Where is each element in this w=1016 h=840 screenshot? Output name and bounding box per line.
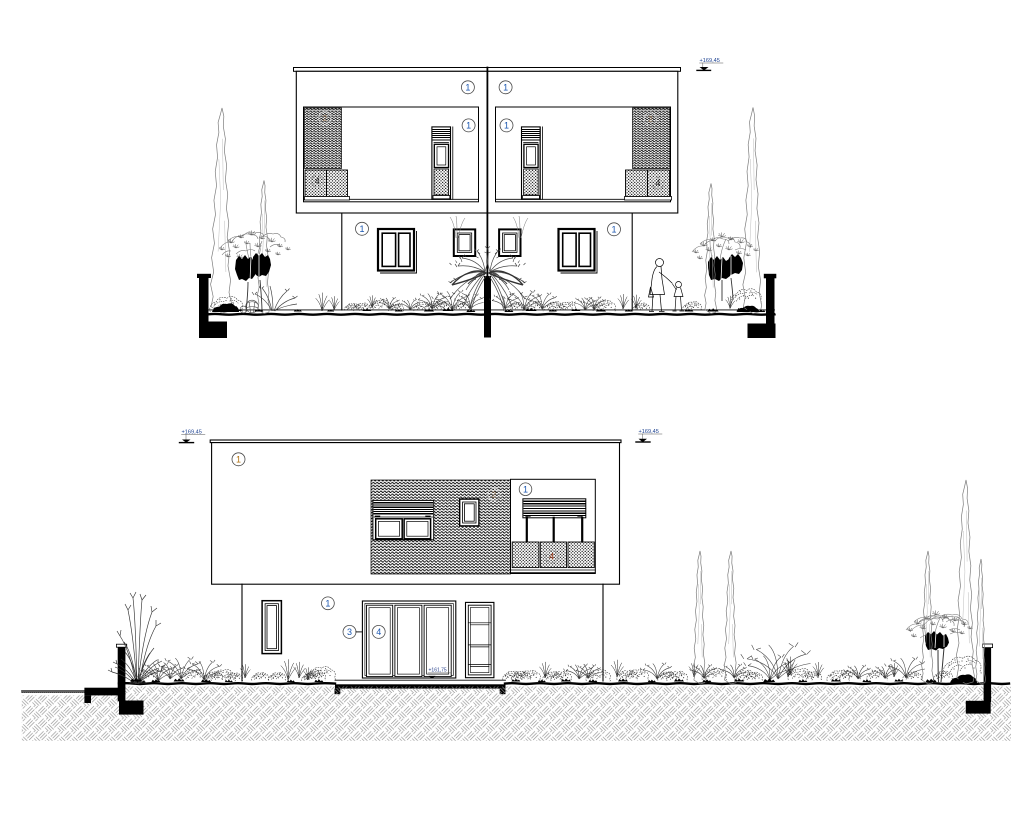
- svg-text:4: 4: [655, 178, 660, 188]
- svg-text:2: 2: [492, 491, 497, 500]
- svg-text:1: 1: [523, 484, 528, 494]
- svg-text:1: 1: [359, 224, 364, 234]
- svg-text:3: 3: [347, 627, 352, 637]
- svg-text:1: 1: [465, 82, 470, 92]
- svg-text:1: 1: [611, 224, 616, 234]
- svg-text:1: 1: [325, 598, 330, 608]
- svg-text:1: 1: [466, 121, 471, 131]
- svg-text:2: 2: [648, 115, 653, 124]
- svg-text:1: 1: [236, 454, 241, 464]
- svg-text:4: 4: [549, 552, 554, 562]
- svg-text:1: 1: [504, 121, 509, 131]
- svg-text:4: 4: [315, 176, 320, 186]
- svg-text:+161,75: +161,75: [429, 668, 447, 674]
- svg-text:4: 4: [376, 627, 381, 637]
- svg-text:1: 1: [503, 82, 508, 92]
- svg-text:2: 2: [323, 114, 328, 123]
